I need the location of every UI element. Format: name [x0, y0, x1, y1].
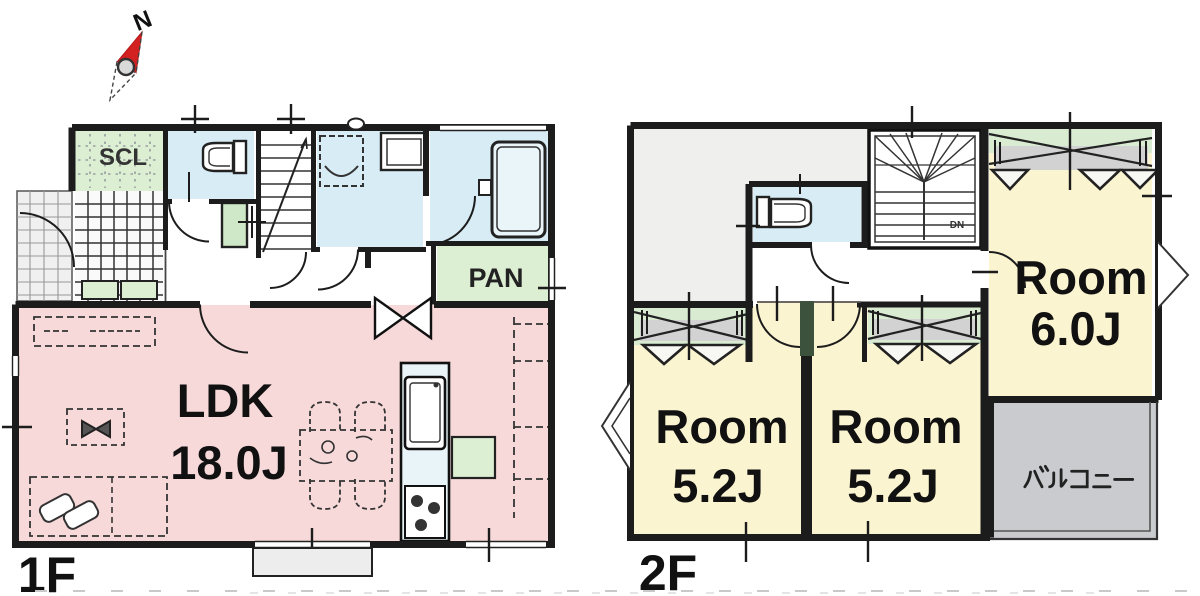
svg-text:SCL: SCL — [99, 144, 147, 171]
svg-text:Room: Room — [655, 400, 788, 453]
svg-text:PAN: PAN — [468, 263, 523, 293]
svg-text:5.2J: 5.2J — [847, 459, 938, 512]
svg-text:LDK: LDK — [177, 374, 274, 427]
svg-text:1F: 1F — [18, 547, 76, 596]
svg-text:5.2J: 5.2J — [672, 459, 763, 512]
svg-text:DN: DN — [950, 220, 964, 231]
svg-text:6.0J: 6.0J — [1030, 302, 1121, 355]
svg-text:18.0J: 18.0J — [170, 436, 288, 489]
svg-text:Room: Room — [829, 400, 962, 453]
svg-text:2F: 2F — [639, 545, 697, 596]
svg-text:Room: Room — [1014, 251, 1147, 304]
